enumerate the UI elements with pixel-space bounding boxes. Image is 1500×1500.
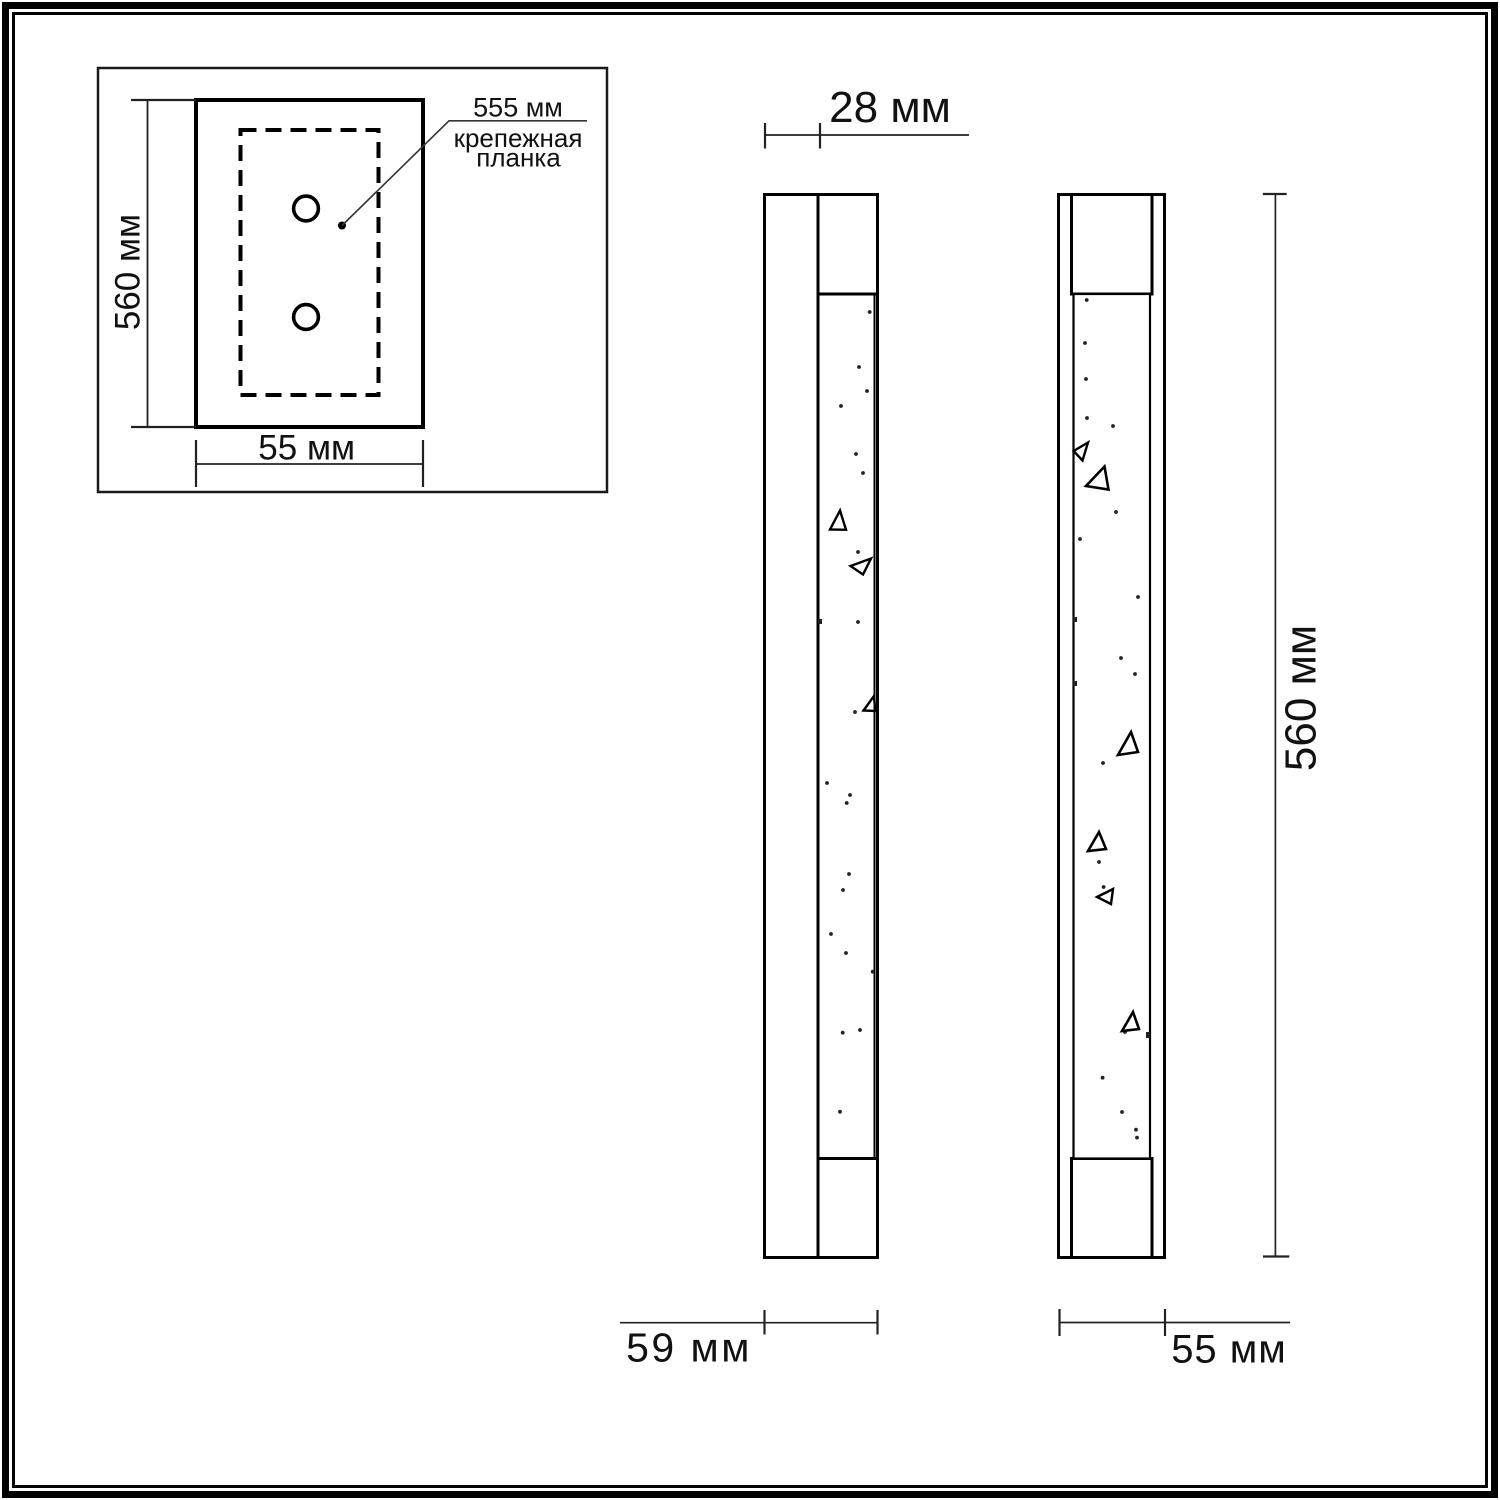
svg-text:555 мм: 555 мм [473, 93, 563, 123]
svg-text:560 мм: 560 мм [1277, 625, 1326, 771]
svg-text:59 мм: 59 мм [626, 1325, 752, 1371]
svg-text:планка: планка [476, 143, 561, 173]
svg-text:55 мм: 55 мм [258, 429, 355, 468]
svg-text:55 мм: 55 мм [1171, 1328, 1287, 1372]
svg-text:560 мм: 560 мм [109, 214, 148, 330]
svg-text:28 мм: 28 мм [829, 83, 951, 132]
